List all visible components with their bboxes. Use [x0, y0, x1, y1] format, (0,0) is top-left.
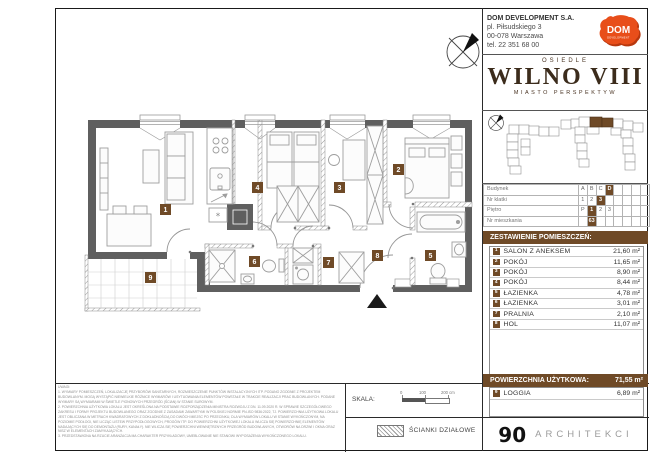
legal-notes: UWAGI: 1. WYMIARY POMIESZCZEŃ, LOKALIZAC… [58, 385, 342, 439]
notes-line: 3. PRZEDSTAWIONA NA RZUCIE ARANŻACJA MA … [58, 434, 342, 439]
room-area: 11,65 m² [614, 259, 640, 266]
developer-address: DOM DEVELOPMENT S.A. pl. Piłsudskiego 3 … [487, 14, 574, 50]
table-row: Nr klatki 1 2 3 [484, 196, 650, 207]
room-area: 8,44 m² [617, 279, 640, 286]
site-highlighted-unit [590, 117, 613, 127]
floor-plan: * [55, 8, 482, 383]
room-name: ŁAZIENKA [504, 300, 538, 307]
shelf [451, 154, 462, 168]
svg-text:8: 8 [376, 253, 380, 260]
loggia-box: 9 LOGGIA 6,89 m² [489, 387, 644, 417]
rooms-list: 1 SALON Z ANEKSEM 21,60 m² 2 POKÓJ 11,65… [489, 246, 644, 375]
svg-text:2: 2 [397, 167, 401, 174]
svg-text:6: 6 [253, 259, 257, 266]
kitchen-counter [207, 128, 233, 204]
room-number-badge: 9 [493, 390, 500, 397]
room-number-badge: 1 [493, 248, 500, 255]
estate-name: WILNO VIII [482, 64, 649, 90]
svg-text:9: 9 [149, 275, 153, 282]
company-street: pl. Piłsudskiego 3 [487, 23, 574, 32]
room-name: ŁAZIENKA [504, 290, 538, 297]
room-label-8: 8 [372, 250, 383, 261]
toilet [431, 264, 445, 279]
company-city: 00-078 Warszawa [487, 32, 574, 41]
company-phone: tel. 22 351 68 00 [487, 41, 574, 50]
room-number-badge: 7 [493, 311, 500, 318]
room-label-6: 6 [249, 256, 260, 267]
room-name: POKÓJ [504, 279, 528, 286]
shelf [451, 136, 462, 150]
room-area: 11,07 m² [614, 321, 640, 328]
room-number-badge: 6 [493, 300, 500, 307]
chair [113, 206, 126, 214]
room-row: 7 PRALNIA 2,10 m² [490, 309, 643, 319]
room-row: 5 ŁAZIENKA 4,78 m² [490, 289, 643, 299]
architect-logo-number: 90 [498, 423, 526, 447]
room-number-badge: 2 [493, 259, 500, 266]
architect-logo: 90 ARCHITEKCI [482, 417, 649, 452]
room-area: 4,78 m² [617, 290, 640, 297]
room-number-badge: 4 [493, 280, 500, 287]
room-label-7: 7 [323, 257, 334, 268]
room-row: 8 HOL 11,07 m² [490, 320, 643, 330]
scale-bar-empty [425, 398, 450, 404]
room-name: SALON Z ANEKSEM [504, 248, 571, 255]
scale-label: SKALA: [352, 396, 375, 403]
room-name: LOGGIA [504, 390, 531, 397]
entrance-arrow [367, 294, 387, 308]
room-label-2: 2 [393, 164, 404, 175]
room-area: 8,90 m² [617, 269, 640, 276]
usable-area-value: 71,55 m² [615, 374, 648, 387]
company-name: DOM DEVELOPMENT S.A. [487, 14, 574, 23]
room-row: 4 POKÓJ 8,44 m² [490, 278, 643, 288]
room-label-3: 3 [334, 182, 345, 193]
room-number-badge: 8 [493, 321, 500, 328]
svg-text:DOM: DOM [607, 25, 630, 36]
tv-unit [100, 148, 108, 210]
room-row: 3 POKÓJ 8,90 m² [490, 268, 643, 278]
notes-line: 2. POWIERZCHNIA UŻYTKOWA LOKALU JEST OKR… [58, 405, 342, 435]
room-area: 6,89 m² [617, 390, 640, 397]
table-row: Budynek A B C D [484, 185, 650, 196]
rooms-list-title: ZESTAWIENIE POMIESZCZEŃ: [483, 231, 592, 244]
unit-locator-table: Budynek A B C D Nr klatki 1 2 3 Piętro P… [483, 184, 650, 227]
room-label-9: 9 [145, 272, 156, 283]
coffee-table [143, 150, 159, 183]
room-number-badge: 3 [493, 269, 500, 276]
svg-text:4: 4 [256, 185, 260, 192]
scale-bar-filled [402, 398, 425, 402]
room-number-badge: 5 [493, 290, 500, 297]
partition-wall-label: ŚCIANKI DZIAŁOWE [409, 427, 476, 434]
desk [343, 140, 365, 180]
chair [329, 155, 340, 166]
site-plan [483, 111, 649, 182]
svg-text:5: 5 [429, 253, 433, 260]
svg-text:7: 7 [327, 260, 331, 267]
svg-text:*: * [216, 212, 221, 222]
room-label-4: 4 [252, 182, 263, 193]
room-area: 21,60 m² [613, 248, 640, 255]
architect-logo-name: ARCHITEKCI [535, 429, 633, 440]
room-row: 1 SALON Z ANEKSEM 21,60 m² [490, 247, 643, 257]
washbasin [241, 274, 254, 284]
toilet [263, 260, 276, 272]
room-area: 2,10 m² [617, 311, 640, 318]
room-label-5: 5 [425, 250, 436, 261]
notes-line: 1. WYMIARY POMIESZCZEŃ, LOKALIZACJĘ PRZY… [58, 390, 342, 405]
svg-text:1: 1 [164, 207, 168, 214]
floorplan-sheet: * [0, 0, 651, 460]
room-area: 3,01 m² [617, 300, 640, 307]
rooms-list-header: ZESTAWIENIE POMIESZCZEŃ: [483, 231, 648, 244]
estate-branding: OSIEDLE WILNO VIII MIASTO PERSPEKTYW [482, 58, 649, 96]
usable-area-label: POWIERZCHNIA UŻYTKOWA: [483, 374, 589, 387]
loggia-row: 9 LOGGIA 6,89 m² [490, 388, 643, 400]
divider-header [482, 54, 648, 55]
north-arrow-icon [447, 33, 479, 68]
room-name: HOL [504, 321, 519, 328]
shelf [451, 172, 462, 186]
dining-table [107, 214, 151, 246]
site-buildings [507, 117, 643, 174]
estate-subtitle: MIASTO PERSPEKTYW [482, 90, 649, 96]
usable-area-bar: POWIERZCHNIA UŻYTKOWA: 71,55 m² [483, 374, 648, 387]
room-name: PRALNIA [504, 311, 535, 318]
room-name: POKÓJ [504, 259, 528, 266]
svg-text:3: 3 [338, 185, 342, 192]
partition-wall-swatch [377, 425, 404, 437]
room-label-1: 1 [160, 204, 171, 215]
table-row: Nr mieszkania 63 [484, 217, 650, 228]
room-row: 6 ŁAZIENKA 3,01 m² [490, 299, 643, 309]
table-row: Piętro P 1 2 3 [484, 206, 650, 217]
dom-logo: DOM DEVELOPMENT [596, 14, 642, 48]
double-bed [405, 138, 449, 144]
chair [134, 206, 147, 214]
site-compass-icon [489, 115, 504, 131]
loggia-floor [88, 259, 197, 308]
room-name: POKÓJ [504, 269, 528, 276]
room-row: 2 POKÓJ 11,65 m² [490, 257, 643, 267]
svg-text:DEVELOPMENT: DEVELOPMENT [607, 37, 630, 40]
